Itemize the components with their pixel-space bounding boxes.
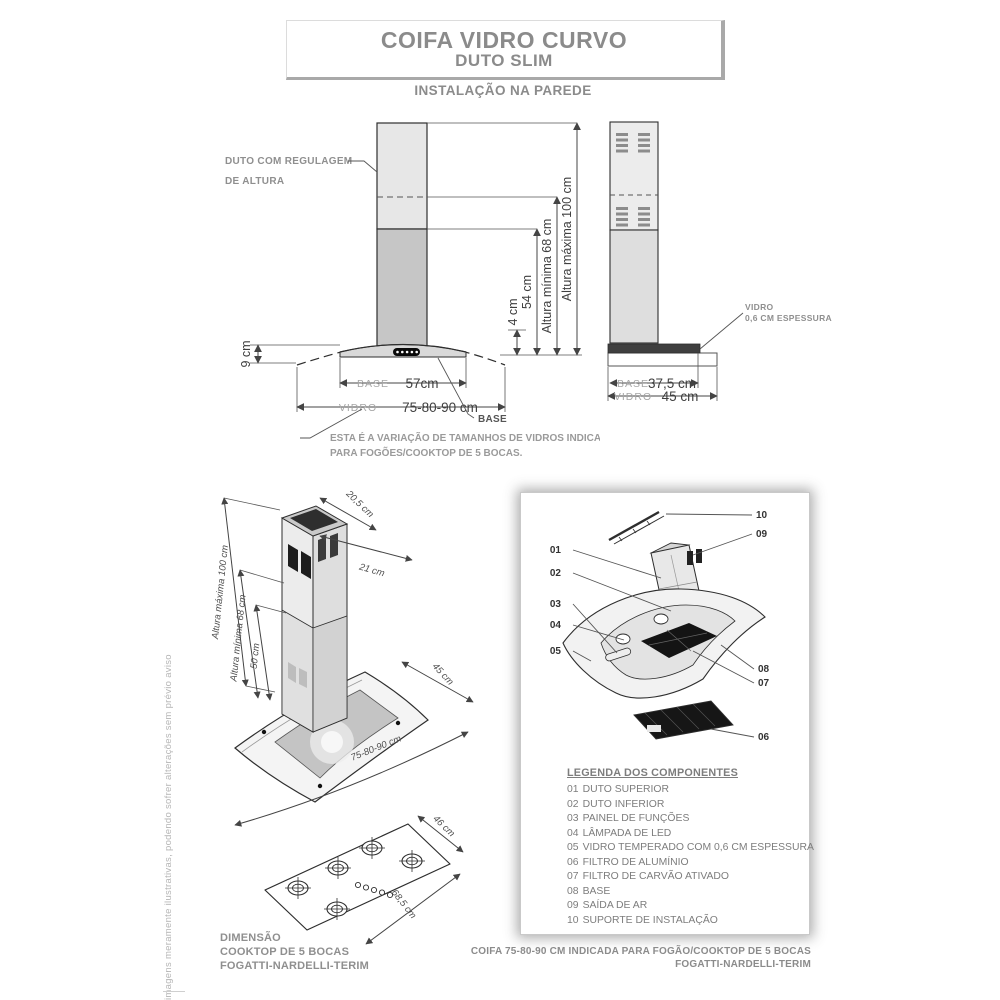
isometric-diagram: Altura máxima 100 cm Altura mínima 68 cm… <box>180 480 500 960</box>
footer-line1: COIFA 75-80-90 CM INDICADA PARA FOGÃO/CO… <box>430 946 811 959</box>
base-word: BASE <box>357 378 389 390</box>
cooktop-caption-line3: FOGATTI-NARDELLI-TERIM <box>220 959 369 973</box>
footer-caption: COIFA 75-80-90 CM INDICADA PARA FOGÃO/CO… <box>430 946 811 971</box>
side-view-diagram: VIDRO 0,6 CM ESPESSURA BASE 37,5 cm VIDR… <box>595 100 925 410</box>
cooktop-depth-label: 46 cm <box>431 813 457 839</box>
svg-text:0,6 CM ESPESSURA: 0,6 CM ESPESSURA <box>745 313 832 323</box>
callout-02: 02 <box>550 568 562 579</box>
iso-altura-minima-label: Altura mínima 68 cm <box>228 594 248 683</box>
svg-text:DE ALTURA: DE ALTURA <box>225 176 284 187</box>
legend-item: 08BASE <box>567 885 803 900</box>
svg-text:VIDRO: VIDRO <box>745 302 774 312</box>
legend-item: 01DUTO SUPERIOR <box>567 783 803 798</box>
svg-text:ESTA É A VARIAÇÃO DE TAMANHOS: ESTA É A VARIAÇÃO DE TAMANHOS DE VIDROS … <box>330 431 600 444</box>
side-vidro-value: 45 cm <box>662 389 699 404</box>
aluminum-filter <box>634 701 733 739</box>
callout-01: 01 <box>550 545 562 556</box>
mounting-bracket <box>609 512 664 544</box>
front-glass <box>297 345 505 366</box>
legend-item: 10SUPORTE DE INSTALAÇÃO <box>567 914 803 929</box>
legend-title: LEGENDA DOS COMPONENTES <box>567 767 803 779</box>
iso-50cm-label: 50 cm <box>249 643 263 670</box>
callout-08: 08 <box>758 664 770 675</box>
svg-text:BASE: BASE <box>478 414 507 425</box>
dim-4cm-label: 4 cm <box>506 298 520 325</box>
callout-04: 04 <box>550 620 562 631</box>
page: { "page": { "title_line1": "COIFA VIDRO … <box>0 0 1000 1000</box>
callout-10: 10 <box>756 510 768 521</box>
front-duct-label: DUTO COM REGULAGEM DE ALTURA <box>225 156 377 187</box>
legend-item: 06FILTRO DE ALUMÍNIO <box>567 856 803 871</box>
exploded-canopy <box>563 589 765 698</box>
dim-54cm-label: 54 cm <box>520 275 534 309</box>
cooktop-caption-line1: DIMENSÃO <box>220 931 369 945</box>
installation-subtitle: INSTALAÇÃO NA PAREDE <box>286 83 720 98</box>
side-duct <box>610 122 658 343</box>
legend-item: 09SAÍDA DE AR <box>567 899 803 914</box>
legal-side-note: imagens meramente ilustrativas, podendo … <box>163 612 178 1000</box>
front-note: ESTA É A VARIAÇÃO DE TAMANHOS DE VIDROS … <box>300 409 600 459</box>
callout-07: 07 <box>758 678 770 689</box>
bottom-divider <box>163 991 185 992</box>
side-glass-label: VIDRO 0,6 CM ESPESSURA <box>700 302 832 349</box>
cooktop-caption: DIMENSÃO COOKTOP DE 5 BOCAS FOGATTI-NARD… <box>220 931 369 973</box>
vidro-value: 75-80-90 cm <box>402 400 478 415</box>
page-title: COIFA VIDRO CURVO <box>381 28 627 52</box>
exploded-view-panel: 01 02 03 04 05 10 09 08 07 06 LEGENDA DO… <box>520 492 810 935</box>
callout-09: 09 <box>756 529 768 540</box>
side-vidro-word: VIDRO <box>614 391 652 403</box>
callout-05: 05 <box>550 646 562 657</box>
legend-item: 05VIDRO TEMPERADO COM 0,6 CM ESPESSURA <box>567 841 803 856</box>
svg-text:DUTO COM REGULAGEM: DUTO COM REGULAGEM <box>225 156 352 167</box>
footer-line2: FOGATTI-NARDELLI-TERIM <box>430 959 811 972</box>
exploded-drawing: 01 02 03 04 05 10 09 08 07 06 <box>521 493 809 763</box>
front-duct <box>377 123 427 346</box>
dim-altura-maxima-label: Altura máxima 100 cm <box>560 177 574 301</box>
legend-item: 03PAINEL DE FUNÇÕES <box>567 812 803 827</box>
iso-depth-label: 20,5 cm <box>343 488 376 520</box>
title-box: COIFA VIDRO CURVO DUTO SLIM <box>286 20 725 80</box>
led-lamp <box>616 634 630 644</box>
dim-9cm-label: 9 cm <box>239 340 253 367</box>
components-legend: LEGENDA DOS COMPONENTES 01DUTO SUPERIOR … <box>567 767 803 928</box>
side-base-word: BASE <box>617 378 649 390</box>
dim-altura-minima-label: Altura mínima 68 cm <box>540 219 554 334</box>
front-view-diagram: Altura máxima 100 cm Altura mínima 68 cm… <box>200 100 600 460</box>
iso-chimney <box>282 506 347 732</box>
cooktop-drawing <box>265 816 463 944</box>
cooktop-caption-line2: COOKTOP DE 5 BOCAS <box>220 945 369 959</box>
svg-text:PARA FOGÕES/COOKTOP DE 5 BOCAS: PARA FOGÕES/COOKTOP DE 5 BOCAS. <box>330 446 523 459</box>
callout-03: 03 <box>550 599 562 610</box>
callout-06: 06 <box>758 732 770 743</box>
iso-width-label: 21 cm <box>357 561 386 579</box>
legend-item: 04LÂMPADA DE LED <box>567 827 803 842</box>
page-subtitle-duct: DUTO SLIM <box>455 52 553 70</box>
legend-item: 02DUTO INFERIOR <box>567 798 803 813</box>
iso-altura-maxima-label: Altura máxima 100 cm <box>210 544 231 640</box>
vidro-word: VIDRO <box>339 402 377 414</box>
led-lamp <box>654 614 668 624</box>
iso-45cm-label: 45 cm <box>430 661 456 687</box>
base-value: 57cm <box>405 376 438 391</box>
legend-item: 07FILTRO DE CARVÃO ATIVADO <box>567 870 803 885</box>
